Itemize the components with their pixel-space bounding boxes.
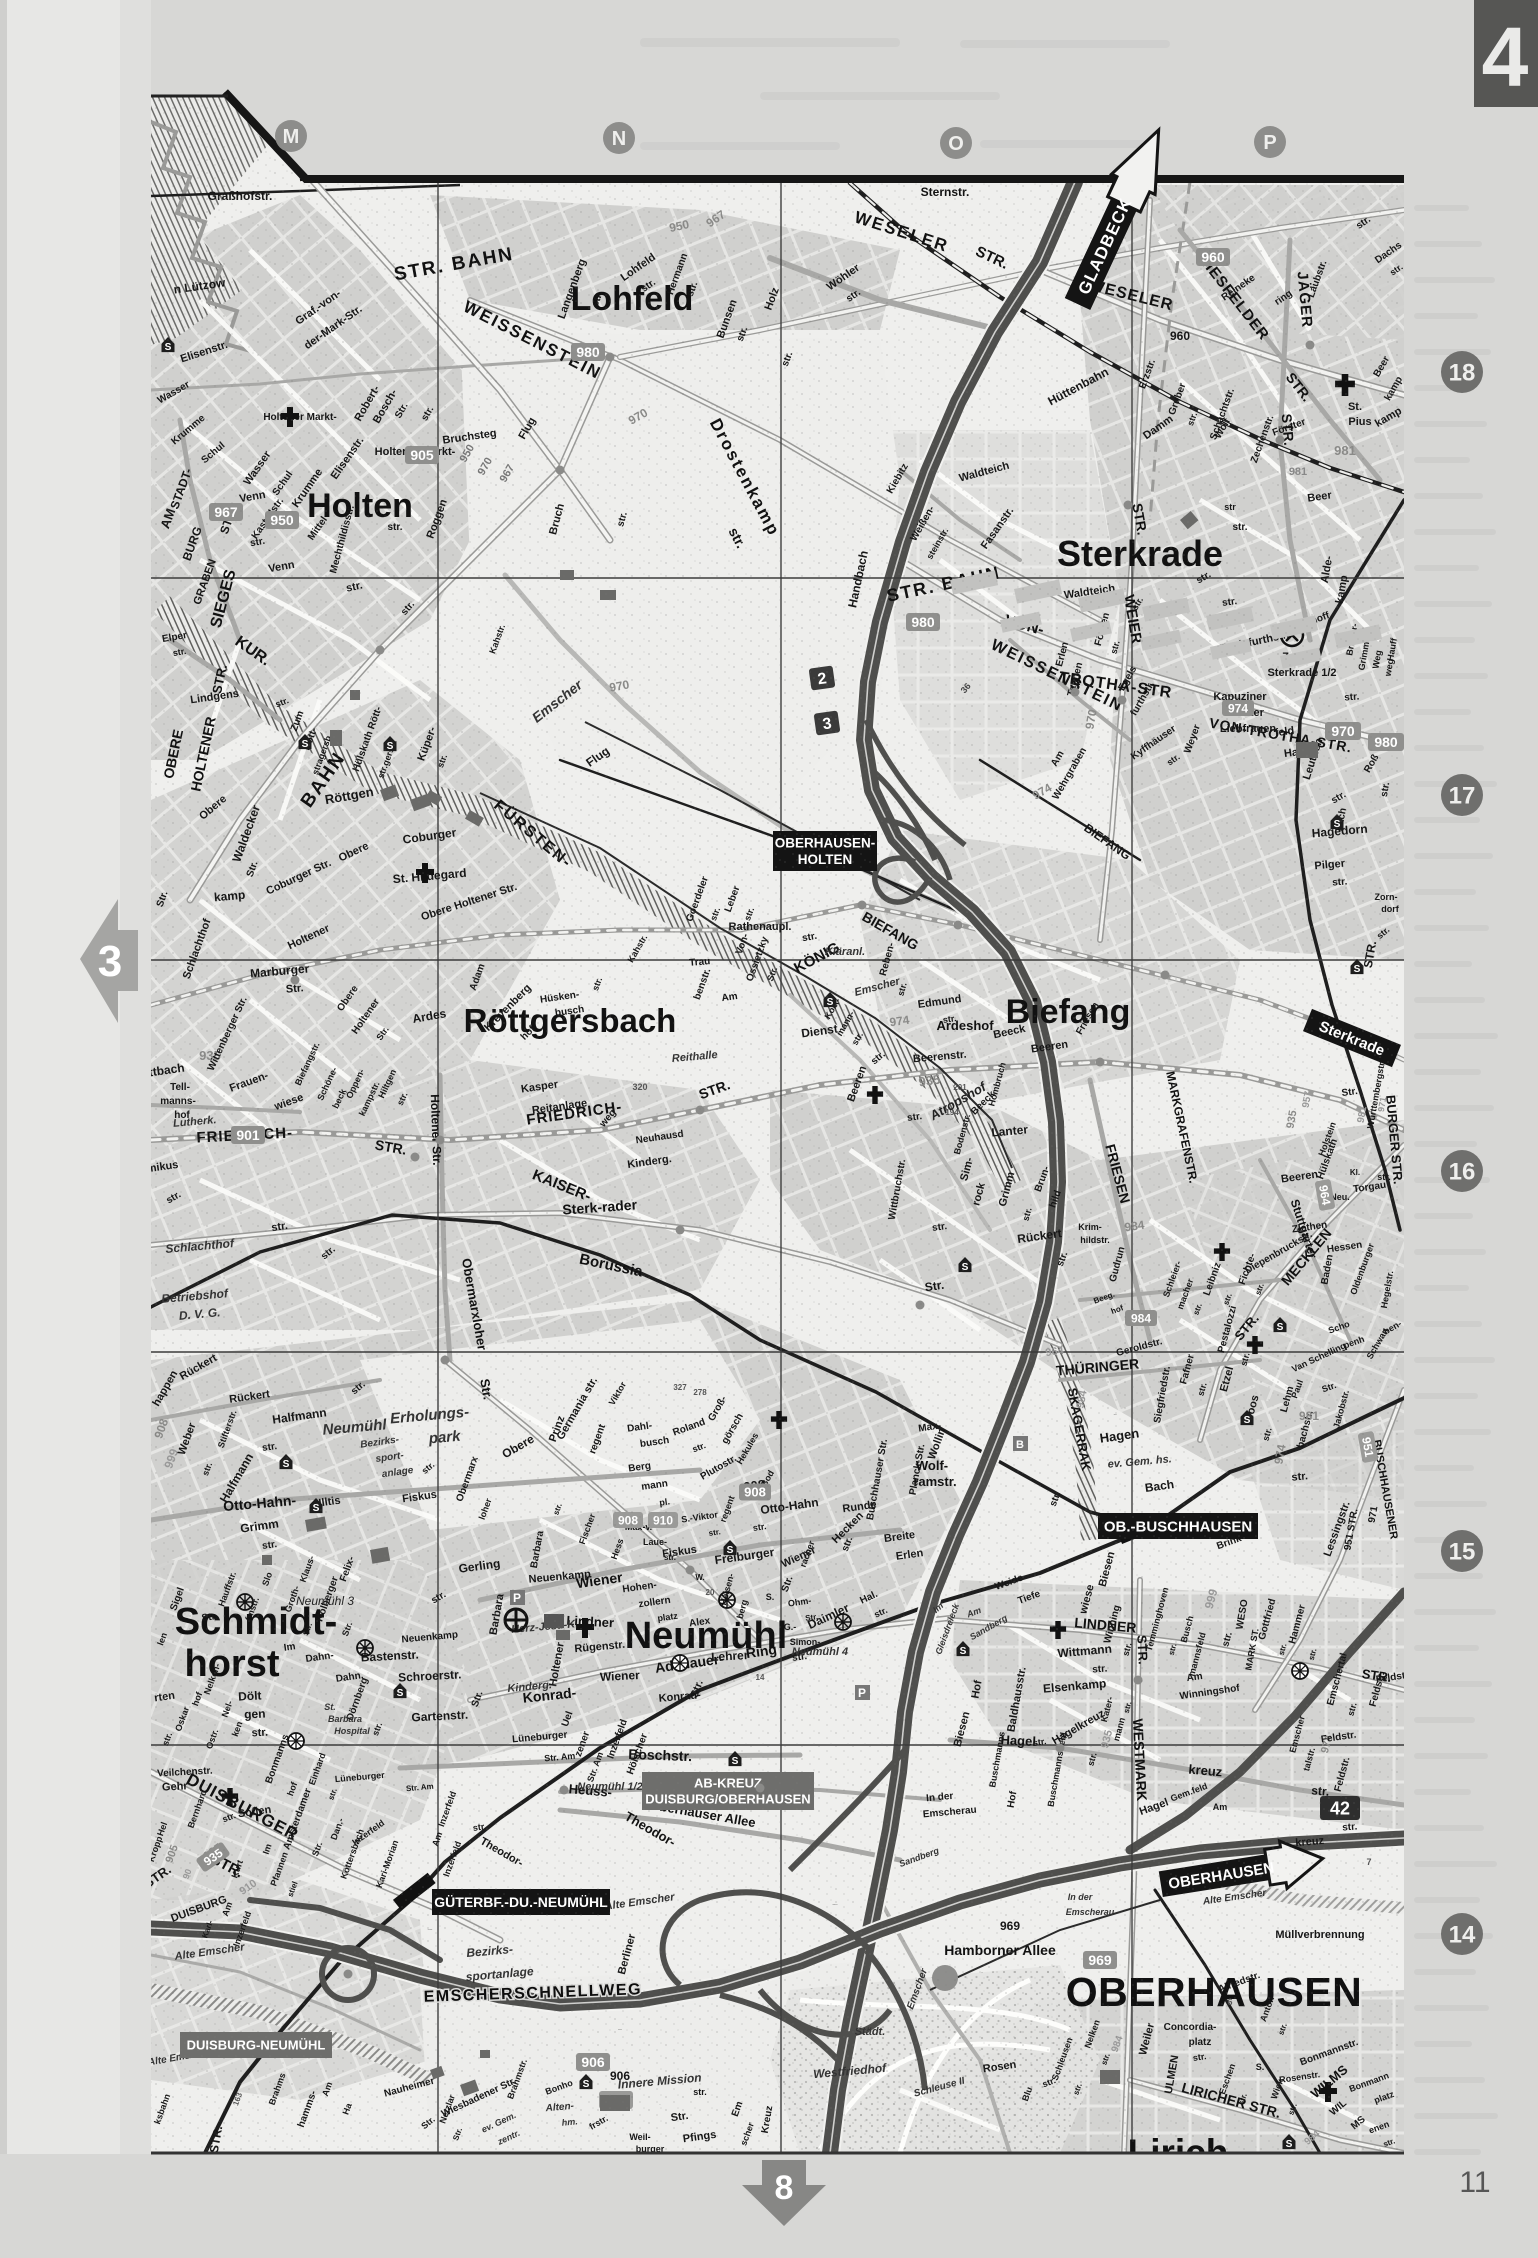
svg-text:14: 14	[1449, 1921, 1476, 1948]
svg-text:17: 17	[1449, 782, 1476, 809]
svg-text:3: 3	[98, 937, 122, 986]
svg-text:M: M	[283, 126, 300, 148]
svg-text:O: O	[948, 133, 964, 155]
svg-text:15: 15	[1449, 1538, 1476, 1565]
svg-text:11: 11	[1459, 2166, 1490, 2199]
svg-text:P: P	[1263, 132, 1276, 154]
svg-text:N: N	[612, 128, 626, 150]
svg-text:4: 4	[1482, 10, 1529, 104]
svg-text:8: 8	[775, 2169, 794, 2207]
svg-text:18: 18	[1449, 359, 1476, 386]
svg-text:16: 16	[1449, 1158, 1476, 1185]
